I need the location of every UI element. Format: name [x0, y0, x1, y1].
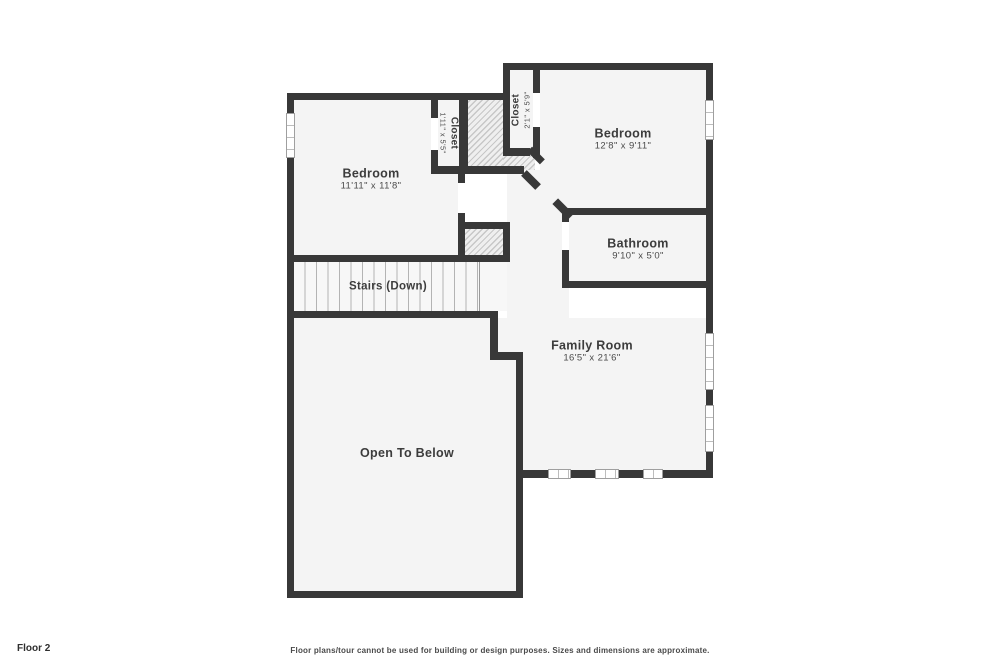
disclaimer-text: Floor plans/tour cannot be used for buil… [290, 646, 709, 655]
room-title: Bedroom [341, 167, 402, 181]
wall-segment [287, 255, 510, 262]
room-label-closet-top: Closet 2'1" x 5'9" [510, 91, 531, 128]
wall-segment [287, 591, 523, 598]
room-title: Family Room [551, 339, 633, 353]
floor-plan: Bedroom 11'11" x 11'8" Closet 1'11" x 5'… [0, 0, 1000, 667]
wall-segment [503, 148, 530, 156]
wall-segment [287, 93, 510, 100]
door-opening [562, 222, 569, 250]
room-label-family-room: Family Room 16'5" x 21'6" [551, 339, 633, 366]
room-label-closet-left: Closet 1'11" x 5'5" [438, 112, 459, 153]
wall-segment [503, 63, 510, 156]
floor-name-label: Floor 2 [17, 643, 50, 654]
wall-segment [431, 100, 438, 118]
wall-segment [490, 352, 523, 360]
wall-segment [458, 170, 465, 183]
wall-segment [458, 213, 465, 262]
room-fill-hall [507, 170, 569, 318]
window-symbol [705, 405, 714, 452]
room-title: Stairs (Down) [349, 280, 427, 293]
room-title: Closet [448, 112, 460, 153]
wall-segment [567, 208, 713, 215]
door-opening [533, 93, 540, 127]
room-dimensions: 9'10" x 5'0" [607, 251, 668, 263]
wall-segment [562, 250, 569, 288]
room-dimensions: 2'1" x 5'9" [522, 91, 532, 128]
room-label-bedroom-left: Bedroom 11'11" x 11'8" [341, 167, 402, 194]
room-dimensions: 1'11" x 5'5" [438, 112, 448, 153]
room-label-stairs: Stairs (Down) [349, 280, 427, 293]
window-symbol [286, 113, 295, 158]
wall-segment [503, 222, 510, 262]
wall-segment [563, 281, 713, 288]
room-title: Bedroom [595, 127, 652, 141]
wall-segment [459, 100, 468, 170]
room-title: Bathroom [607, 237, 668, 251]
window-symbol [548, 469, 571, 479]
wall-segment [287, 311, 498, 318]
hatched-box-area [465, 229, 503, 255]
wall-segment [287, 93, 294, 598]
window-symbol [705, 333, 714, 390]
room-title: Closet [510, 91, 522, 128]
room-label-bathroom: Bathroom 9'10" x 5'0" [607, 237, 668, 264]
room-dimensions: 16'5" x 21'6" [551, 353, 633, 365]
window-symbol [643, 469, 663, 479]
door-opening [431, 118, 438, 150]
room-dimensions: 11'11" x 11'8" [341, 181, 402, 193]
window-symbol [705, 100, 714, 140]
room-label-open-to-below: Open To Below [360, 446, 454, 460]
room-dimensions: 12'8" x 9'11" [595, 141, 652, 153]
window-symbol [595, 469, 619, 479]
room-title: Open To Below [360, 446, 454, 460]
wall-segment [533, 63, 540, 93]
room-label-bedroom-right: Bedroom 12'8" x 9'11" [595, 127, 652, 154]
door-opening [458, 183, 465, 213]
wall-segment [431, 166, 524, 174]
